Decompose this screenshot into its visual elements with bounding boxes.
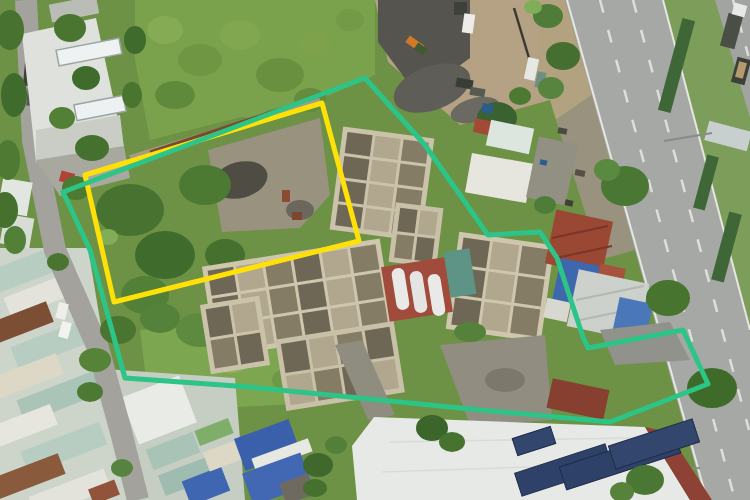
building-room-cell: [365, 327, 395, 360]
building-room-cell: [232, 301, 260, 333]
building-room-cell: [206, 306, 234, 338]
tree: [79, 348, 111, 372]
tree: [75, 135, 109, 161]
street-tree: [594, 159, 620, 181]
bush: [178, 44, 222, 76]
tree: [135, 231, 195, 279]
bush: [256, 58, 304, 92]
street-tree: [538, 77, 564, 99]
building-room-cell: [510, 306, 540, 337]
building-room-cell: [298, 281, 327, 310]
building-room-cell: [485, 272, 515, 303]
building-room-cell: [345, 132, 373, 156]
building-room-cell: [281, 340, 311, 373]
bush: [147, 16, 183, 44]
building-room-cell: [370, 160, 398, 184]
building-room-cell: [481, 302, 511, 333]
building-room-cell: [211, 337, 239, 369]
bush: [336, 9, 364, 31]
bush: [155, 81, 195, 109]
tree: [49, 107, 75, 129]
tree: [303, 453, 333, 477]
tree: [54, 14, 86, 42]
tree: [72, 66, 100, 90]
tree: [179, 165, 231, 205]
building-room-cell: [418, 210, 438, 235]
building-room-cell: [269, 286, 298, 315]
building-room-cell: [322, 249, 351, 278]
bush: [220, 20, 260, 50]
building-room-cell: [363, 208, 391, 232]
building-room-cell: [366, 184, 394, 208]
building-room-cell: [326, 277, 355, 306]
building-room-cell: [398, 163, 426, 187]
building-room-cell: [350, 244, 379, 273]
bush: [299, 32, 331, 58]
palm-tree: [524, 0, 542, 14]
unfinished-building-west-wing: [200, 296, 270, 375]
street-tree: [546, 42, 580, 70]
debris: [282, 190, 290, 202]
building-room-cell: [373, 136, 401, 160]
aerial-photo-svg: [0, 0, 750, 500]
tree: [77, 382, 103, 402]
dump-truck: [454, 2, 467, 15]
tree: [439, 432, 465, 452]
tree: [122, 82, 142, 108]
tree: [47, 253, 69, 271]
building-room-cell: [237, 333, 265, 365]
tree: [303, 479, 327, 497]
tree: [100, 316, 136, 344]
building-room-cell: [518, 246, 548, 277]
building-room-cell: [489, 242, 519, 273]
debris: [292, 212, 302, 220]
tree: [534, 196, 556, 214]
aerial-photo: [0, 0, 750, 500]
building-room-cell: [342, 156, 370, 180]
tree: [140, 303, 180, 333]
tree: [111, 459, 133, 477]
building-room-cell: [514, 276, 544, 307]
tree: [509, 87, 531, 105]
building-room-cell: [394, 234, 414, 259]
unfinished-building-connector: [389, 202, 444, 267]
tree: [325, 436, 347, 454]
tree: [454, 322, 486, 342]
building-room-cell: [354, 272, 383, 301]
building-room-cell: [414, 237, 434, 262]
tree: [1, 73, 27, 117]
tree: [96, 184, 164, 236]
building-room-cell: [309, 336, 339, 369]
street-tree: [646, 280, 690, 316]
tree: [4, 226, 26, 254]
tree: [124, 26, 146, 54]
building-room-cell: [397, 208, 417, 233]
yard-stain: [485, 368, 525, 392]
